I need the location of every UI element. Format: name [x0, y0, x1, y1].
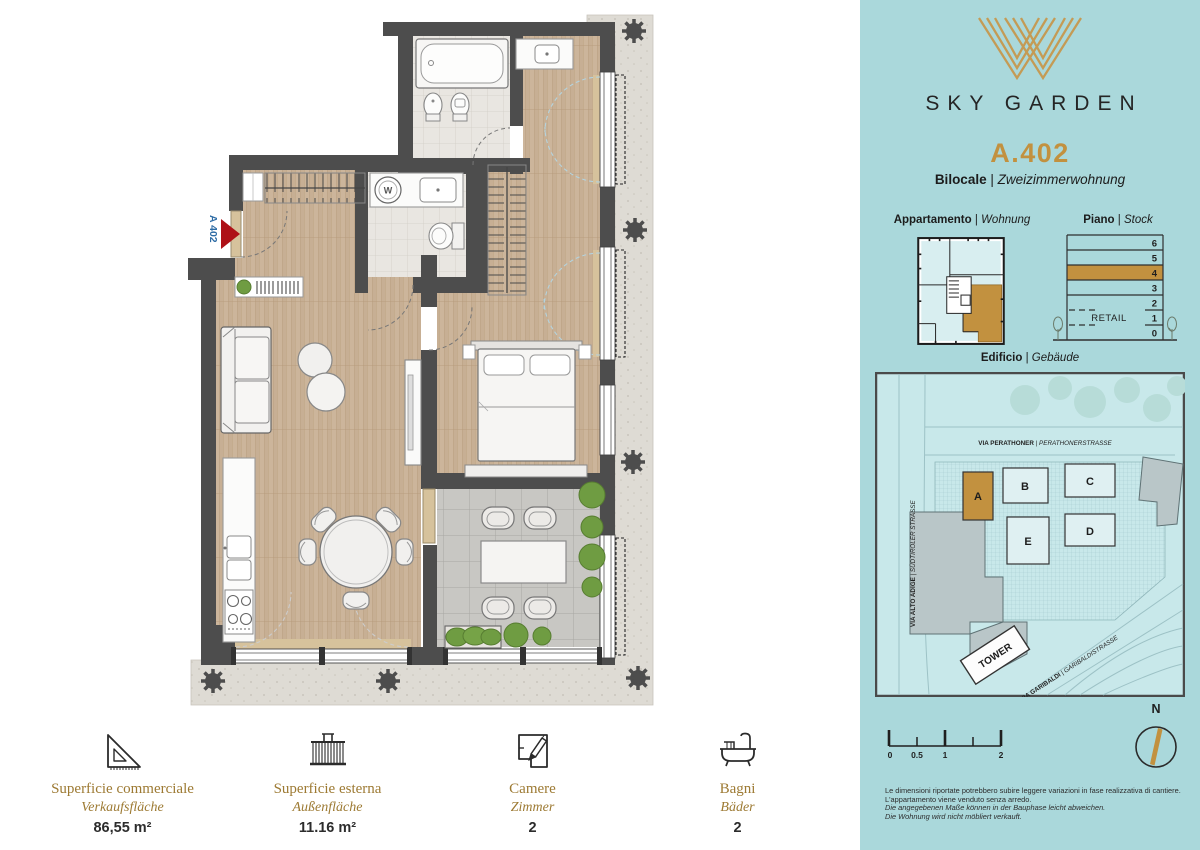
stat-label-de: Zimmer [511, 799, 555, 817]
bed-bench [465, 465, 587, 477]
unit-type-de: Zweizimmerwohnung [998, 172, 1126, 187]
stat-value: 86,55 m² [93, 820, 151, 836]
stat-label-it: Camere [509, 780, 556, 799]
header-de: Stock [1124, 214, 1153, 226]
vanity-sink [516, 39, 573, 69]
bathtub [416, 39, 508, 88]
header-de: Wohnung [981, 214, 1030, 226]
unit-code: A.402 [860, 138, 1200, 169]
header-it: Piano [1083, 214, 1114, 226]
stat-value: 2 [528, 820, 536, 836]
stat-label-it: Superficie esterna [274, 780, 382, 799]
wardrobe [488, 165, 526, 295]
divider: | [1026, 352, 1029, 364]
divider: | [975, 214, 978, 226]
kitchen-sink [227, 560, 251, 580]
toilet [451, 93, 469, 121]
floor-level-label: 0 [1152, 329, 1157, 340]
stat-label-de: Verkaufsfläche [81, 799, 163, 817]
rooms-plan-icon [510, 724, 556, 774]
info-panel: SKY GARDEN A.402 Bilocale | Zweizimmerwo… [860, 0, 1200, 850]
stat-value: 2 [733, 820, 741, 836]
stat-label-de: Bäder [720, 799, 754, 817]
street-tree-icon [376, 669, 400, 693]
building-c-label: C [1086, 476, 1094, 488]
floor-level-label: 6 [1152, 239, 1157, 250]
kitchen-counter [223, 458, 255, 642]
stat-label-it: Bagni [720, 780, 756, 799]
floor-level-label: 2 [1152, 299, 1157, 310]
tv-sideboard [405, 360, 421, 465]
header-it: Edificio [981, 352, 1023, 364]
header-de: Gebäude [1032, 352, 1079, 364]
north-arrow-icon: N [1128, 700, 1184, 778]
unit-marker-label: A 402 [207, 215, 219, 243]
floor-plan-drawing: A 402 [183, 14, 661, 706]
building-b-label: B [1021, 481, 1029, 493]
sofa [221, 327, 271, 433]
pouf [307, 373, 345, 411]
kitchen-sink [227, 536, 251, 558]
stats-row: Superficie commerciale Verkaufsfläche 86… [20, 724, 840, 836]
stat-camere: Camere Zimmer 2 [430, 724, 635, 836]
brand-name: SKY GARDEN [860, 92, 1200, 116]
street-tree-icon [622, 19, 646, 43]
section-header-building: Edificio | Gebäude [860, 352, 1200, 364]
stat-label-it: Superficie commerciale [51, 780, 194, 799]
street-label-alto-adige: VIA ALTO ADIGE | SÜDTIROLER STRASSE [909, 500, 917, 627]
sky-garden-monogram-icon [975, 16, 1085, 80]
unit-type: Bilocale | Zweizimmerwohnung [860, 172, 1200, 187]
pouf [298, 343, 332, 377]
building-a-label: A [974, 491, 982, 503]
disclaimer-line: Die Wohnung wird nicht möbliert verkauft… [885, 813, 1190, 822]
floor-plan: A 402 [183, 14, 661, 706]
balcony-icon [305, 724, 351, 774]
floor-level-label: 4 [1152, 269, 1158, 280]
bookshelf [235, 277, 303, 297]
section-header-floor: Piano | Stock [1050, 214, 1186, 226]
stat-value: 11.16 m² [299, 820, 356, 836]
brochure-page: A 402 [0, 0, 1200, 850]
coat-rack [243, 173, 365, 203]
scale-bar: 0 0.5 1 2 [885, 724, 1005, 766]
north-label: N [1151, 702, 1160, 716]
scale-label: 2 [999, 750, 1004, 760]
terrace-door [423, 489, 435, 543]
window [443, 647, 602, 665]
stat-superficie-esterna: Superficie esterna Außenfläche 11.16 m² [225, 724, 430, 836]
stat-bagni: Bagni Bäder 2 [635, 724, 840, 836]
floor-level-label: 5 [1152, 254, 1158, 265]
site-map: A B C D E TOWER VIA PERATHONER | PERATHO… [875, 372, 1185, 697]
divider: | [1118, 214, 1121, 226]
stove [225, 590, 253, 634]
header-it: Appartamento [894, 214, 972, 226]
section-header-apartment: Appartamento | Wohnung [872, 214, 1052, 226]
toilet [429, 223, 464, 249]
floor-plan-panel: A 402 [0, 0, 860, 850]
scale-label: 0.5 [911, 750, 923, 760]
retail-label: RETAIL [1091, 313, 1127, 324]
floor-level-label: 1 [1152, 314, 1158, 325]
compass-needle [1150, 728, 1163, 766]
street-label-perathoner: VIA PERATHONER | PERATHONERSTRASSE [978, 440, 1112, 447]
disclaimer: Le dimensioni riportate potrebbero subir… [885, 787, 1190, 822]
plant [237, 280, 251, 294]
building-d-label: D [1086, 526, 1094, 538]
planter-box [445, 626, 501, 648]
laundry-counter: W [370, 173, 463, 207]
bed [463, 341, 591, 477]
divider: | [990, 172, 994, 187]
scale-label: 0 [888, 750, 893, 760]
stat-label-de: Außenfläche [293, 799, 363, 817]
street-tree-icon [626, 666, 650, 690]
floor-stack-diagram: 6 5 4 3 2 1 0 RETAIL [1050, 231, 1180, 347]
apartment-key-plan [915, 234, 1007, 348]
street-tree-icon [621, 450, 645, 474]
set-square-icon [100, 724, 146, 774]
floor-level-label: 3 [1152, 284, 1157, 295]
street-tree-icon [623, 218, 647, 242]
bathtub-icon [715, 724, 761, 774]
washer-label: W [384, 186, 393, 196]
building-e-label: E [1024, 536, 1031, 548]
window [600, 385, 615, 455]
scale-label: 1 [943, 750, 948, 760]
bidet [424, 93, 442, 121]
street-tree-icon [201, 669, 225, 693]
unit-type-it: Bilocale [935, 172, 987, 187]
stat-superficie-commerciale: Superficie commerciale Verkaufsfläche 86… [20, 724, 225, 836]
